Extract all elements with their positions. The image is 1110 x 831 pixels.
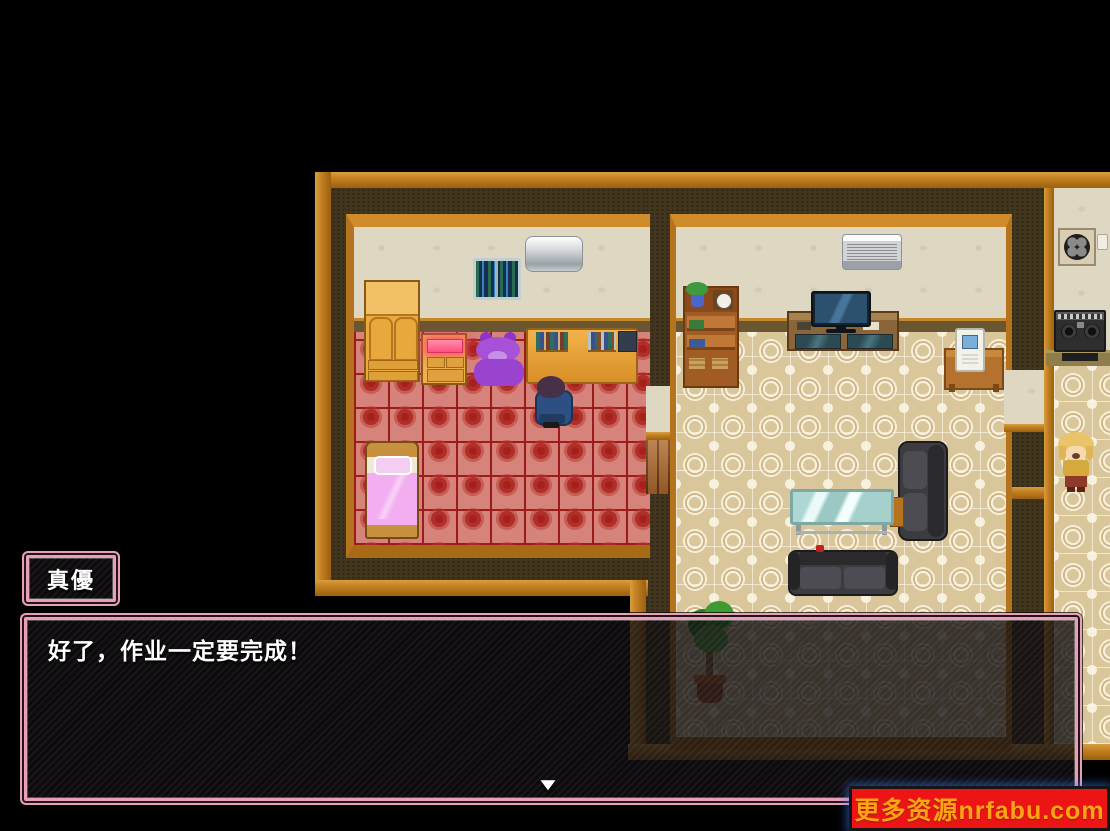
fan-blades <box>1064 234 1090 260</box>
watermark-banner[interactable]: 更多资源nrfabu.com <box>849 786 1110 831</box>
dresser-drawer-a <box>427 357 445 368</box>
stand-item-dark <box>797 322 811 330</box>
sofa-v-cushion-1 <box>903 451 927 489</box>
dialogue-window[interactable]: 好了，作业一定要完成！ ▼ <box>20 613 1082 805</box>
basket-left <box>689 358 705 369</box>
plant-leaves <box>686 282 708 296</box>
air-conditioner-living <box>842 234 902 270</box>
tv-screen <box>815 294 867 323</box>
stove <box>1054 310 1106 352</box>
bed-blanket-sheen <box>371 475 413 519</box>
house-outer-frame-left <box>315 172 331 596</box>
plant-pot <box>691 295 704 307</box>
sofa-h-cushion-1 <box>800 567 841 589</box>
student-on-chair <box>531 376 571 428</box>
dialogue-text: 好了，作业一定要完成！ <box>48 632 312 666</box>
dresser-drawer-b <box>446 357 464 368</box>
wardrobe <box>364 280 420 382</box>
tv-base <box>826 329 856 333</box>
girl-hair-strand-right <box>1086 446 1093 460</box>
speaker-name: 真優 <box>47 563 95 595</box>
appliance-window <box>962 335 978 349</box>
dresser <box>421 333 467 385</box>
sofa-horizontal <box>788 550 898 596</box>
teddy-bear <box>474 332 524 386</box>
stove-backsplash <box>1058 314 1102 319</box>
sofa-h-cushion-2 <box>844 567 885 589</box>
sofa-h-back <box>800 552 886 565</box>
sofa-h-arm-right <box>886 552 898 590</box>
watermark-text: 更多资源nrfabu.com <box>854 791 1104 827</box>
girl-shoe-right <box>1077 487 1085 492</box>
wardrobe-drawer-2 <box>368 371 418 381</box>
desk-books-left <box>536 332 568 352</box>
girl-hair-strand-left <box>1059 446 1066 460</box>
teddy-body <box>474 359 524 386</box>
ac-slats <box>847 242 897 260</box>
kitchen-counter <box>1046 350 1110 366</box>
stove-burner-left <box>1061 324 1077 339</box>
cabinet-right <box>847 334 893 349</box>
chair-base <box>543 422 559 428</box>
wall-clock <box>716 293 732 309</box>
basket-right <box>712 358 728 369</box>
speaker-name-box: 真優 <box>22 551 120 606</box>
bedroom-outer-frame-bottom <box>315 580 648 596</box>
student-hair <box>537 376 565 398</box>
girl-mouth <box>1072 453 1080 459</box>
bed-pillow <box>374 456 412 475</box>
game-viewport[interactable]: 真優 好了，作业一定要完成！ ▼ 更多资源nrfabu.com <box>0 0 1110 831</box>
tv <box>811 291 871 333</box>
blonde-girl <box>1058 432 1094 496</box>
wardrobe-door-right <box>394 317 418 361</box>
fan-switch <box>1097 234 1108 250</box>
girl-shirt <box>1063 460 1089 477</box>
girl-pants <box>1065 476 1087 487</box>
glass-table-top <box>790 489 894 525</box>
bookshelf <box>683 286 739 388</box>
girl-shoe-left <box>1067 487 1075 492</box>
dresser-drawer-c <box>427 369 464 382</box>
glowing-item <box>427 339 463 353</box>
sofa-v-cushion-2 <box>903 493 927 531</box>
red-item <box>816 545 824 552</box>
blue-books <box>689 339 705 348</box>
cabinet-left <box>795 334 841 349</box>
glass-table-bar <box>796 531 887 534</box>
appliance-vents <box>962 354 978 364</box>
house-outer-frame-top <box>315 172 1110 188</box>
green-books <box>689 320 704 329</box>
wardrobe-drawer-1 <box>368 360 418 370</box>
divider-frame-strip <box>1012 487 1044 499</box>
desk-books-right <box>588 332 616 352</box>
wall-window <box>473 258 521 300</box>
window-divider <box>495 261 498 297</box>
desk-dark-box <box>618 331 637 352</box>
sofa-v-back <box>928 445 944 537</box>
ventilation-fan <box>1058 228 1096 266</box>
sofa-vertical <box>898 441 948 541</box>
table-leg-right <box>993 384 999 392</box>
wardrobe-top <box>366 282 418 316</box>
sofa-h-arm-left <box>788 552 800 590</box>
table-leg-left <box>949 384 955 392</box>
stove-burner-right <box>1084 324 1100 339</box>
continue-indicator-icon[interactable]: ▼ <box>518 775 578 795</box>
stove-knob <box>1077 322 1084 328</box>
white-appliance <box>955 328 985 372</box>
bed <box>365 441 419 539</box>
wardrobe-door-left <box>369 317 393 361</box>
glass-table <box>790 489 894 537</box>
air-conditioner-bedroom <box>525 236 583 272</box>
counter-slot <box>1062 353 1098 361</box>
